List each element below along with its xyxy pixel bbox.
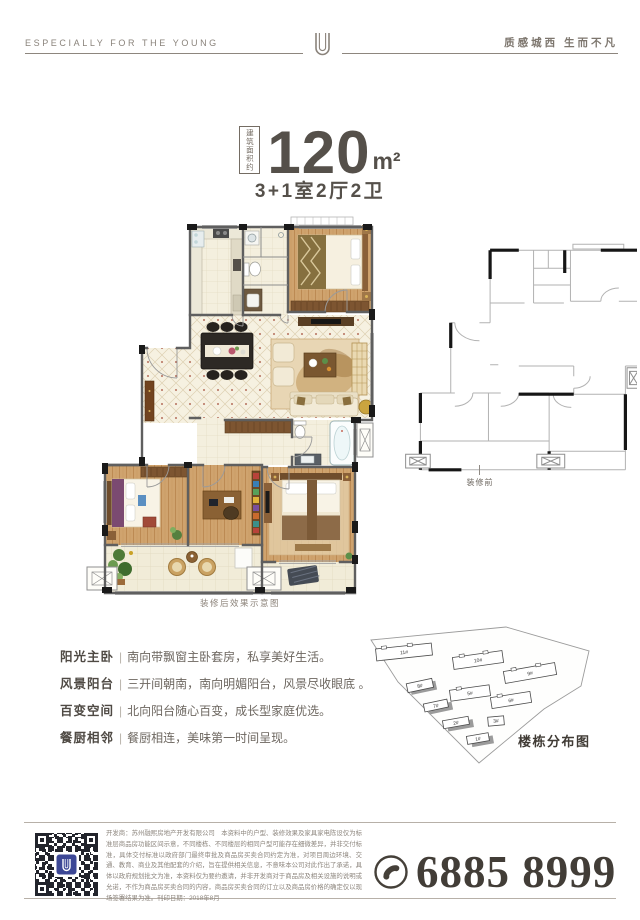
feature-separator: |	[119, 650, 122, 664]
footer-disclaimer: 开发商：苏州融熙房地产开发有限公司 本资料中的户型、装修效果及家具家电陈设仅为标…	[106, 829, 362, 904]
feature-label: 百变空间	[60, 704, 114, 718]
floorplan-before	[392, 243, 637, 478]
feature-separator: |	[119, 677, 122, 691]
dining-area	[201, 322, 253, 380]
feature-desc: 三开间朝南，南向明媚阳台，风景尽收眼底 。	[127, 677, 370, 691]
before-plan-geometry	[406, 244, 637, 470]
siteplan-caption: 楼栋分布图	[518, 731, 608, 750]
phone-icon	[372, 853, 410, 891]
feature-desc: 北向阳台随心百变，成长型家庭优选。	[127, 704, 331, 718]
feature-row: 风景阳台|三开间朝南，南向明媚阳台，风景尽收眼底 。	[60, 673, 390, 693]
header-tagline-cn: 质感城西 生而不凡	[430, 35, 618, 50]
feature-label: 风景阳台	[60, 677, 114, 691]
before-caption-tick	[479, 465, 480, 475]
phone-number: 6885 8999	[416, 846, 616, 898]
unit-layout: 3+1室2厅2卫	[0, 176, 640, 203]
feature-desc: 餐厨相连，美味第一时间呈现。	[127, 731, 295, 745]
area-value: 120	[267, 129, 370, 177]
svg-text:11#: 11#	[400, 650, 409, 657]
after-plan-caption: 装修后效果示意图	[85, 597, 395, 609]
area-unit: m²	[372, 148, 400, 175]
header-tagline-en: ESPECIALLY FOR THE YOUNG	[25, 38, 219, 48]
feature-label: 阳光主卧	[60, 650, 114, 664]
feature-row: 餐厨相邻|餐厨相连，美味第一时间呈现。	[60, 727, 390, 747]
feature-row: 阳光主卧|南向带飘窗主卧套房，私享美好生活。	[60, 646, 390, 666]
svg-text:10#: 10#	[474, 657, 483, 664]
header-rule-left	[25, 53, 303, 54]
footer-rule-top	[24, 822, 616, 823]
feature-desc: 南向带飘窗主卧套房，私享美好生活。	[127, 650, 331, 664]
floorplan-after	[85, 215, 395, 605]
feature-separator: |	[119, 704, 122, 718]
feature-row: 百变空间|北向阳台随心百变，成长型家庭优选。	[60, 700, 390, 720]
feature-separator: |	[119, 731, 122, 745]
qr-code	[33, 831, 100, 898]
area-prefix-box: 建筑面积约	[239, 126, 260, 174]
svg-text:5#: 5#	[467, 691, 474, 698]
svg-text:3#: 3#	[493, 718, 499, 724]
siteplan-map: 11# 10# 9# 8# 5# 6# 7# 2# 3# 1#	[358, 620, 603, 775]
feature-label: 餐厨相邻	[60, 731, 114, 745]
flyer-page: { "header": { "tagline_en": "ESPECIALLY …	[0, 0, 640, 920]
entry-foyer	[145, 381, 154, 421]
before-plan-caption: 装修前	[455, 477, 505, 488]
hall-wardrobe	[225, 421, 291, 433]
brand-u-logo-icon	[306, 30, 338, 62]
qr-center-logo	[54, 852, 79, 877]
phone-block: 6885 8999	[372, 846, 622, 898]
header-rule-right	[342, 53, 618, 54]
unit-title: 建筑面积约 120 m²	[0, 126, 640, 177]
